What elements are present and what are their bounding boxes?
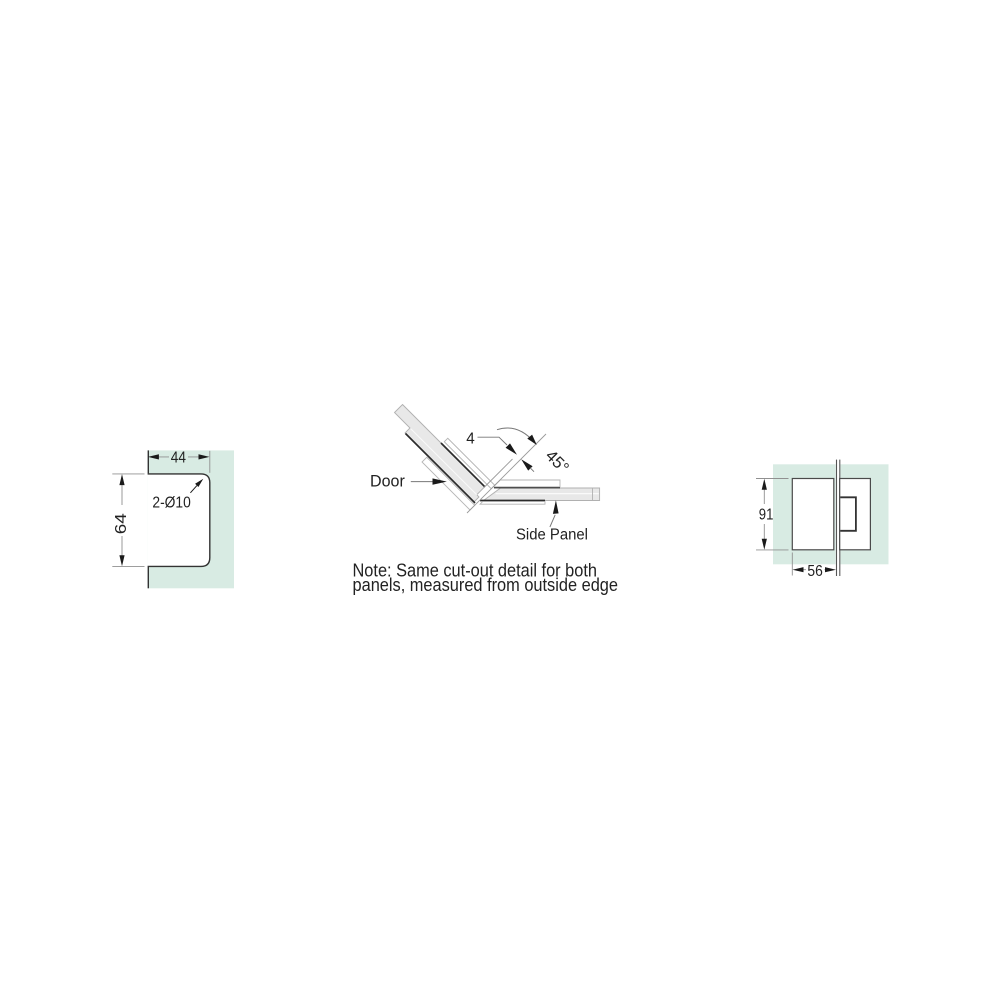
svg-text:Door: Door (370, 473, 405, 491)
svg-text:Side Panel: Side Panel (516, 527, 588, 544)
svg-text:56: 56 (807, 563, 822, 580)
svg-text:91: 91 (759, 507, 774, 524)
svg-text:64: 64 (113, 513, 130, 534)
svg-text:2-Ø10: 2-Ø10 (152, 494, 190, 511)
svg-text:44: 44 (171, 450, 186, 467)
svg-text:4: 4 (466, 430, 475, 447)
svg-text:panels, measured from outside: panels, measured from outside edge (353, 574, 619, 595)
